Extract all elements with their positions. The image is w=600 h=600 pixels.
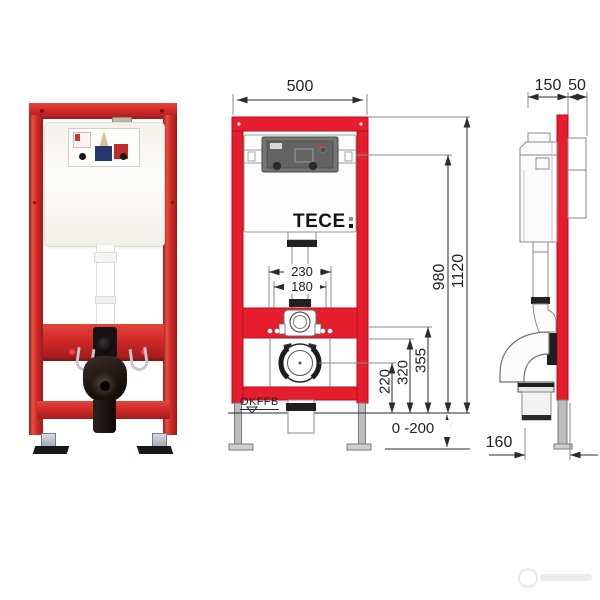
dim-label-500: 500 [270,78,330,96]
dim-label-230: 230 [284,264,320,279]
front-view-crossbar [243,308,357,338]
side-view [489,92,598,460]
tece-logo: TECE [293,211,353,233]
dim-500 [233,94,367,115]
dim-label-160: 160 [475,434,523,452]
dim-label-50: 50 [562,77,592,95]
dim-label-220: 220 [377,352,394,412]
dim-label-180: 180 [284,279,320,294]
front-view-service-box [262,137,338,172]
tece-installation-drawing: 500 230 180 220 320 355 980 1120 0 -200 … [0,0,600,600]
front-view-drain [281,343,319,382]
tece-logo-colon [349,217,353,228]
watermark [519,569,592,587]
tece-logo-text: TECE [293,211,346,233]
floor-level-label: OKFFB [240,396,279,410]
dim-label-feet-range: 0 -200 [376,420,450,437]
dim-label-1120: 1120 [450,241,468,301]
dim-label-320: 320 [395,343,412,403]
dim-label-980: 980 [431,247,449,307]
dim-label-355: 355 [413,331,430,391]
